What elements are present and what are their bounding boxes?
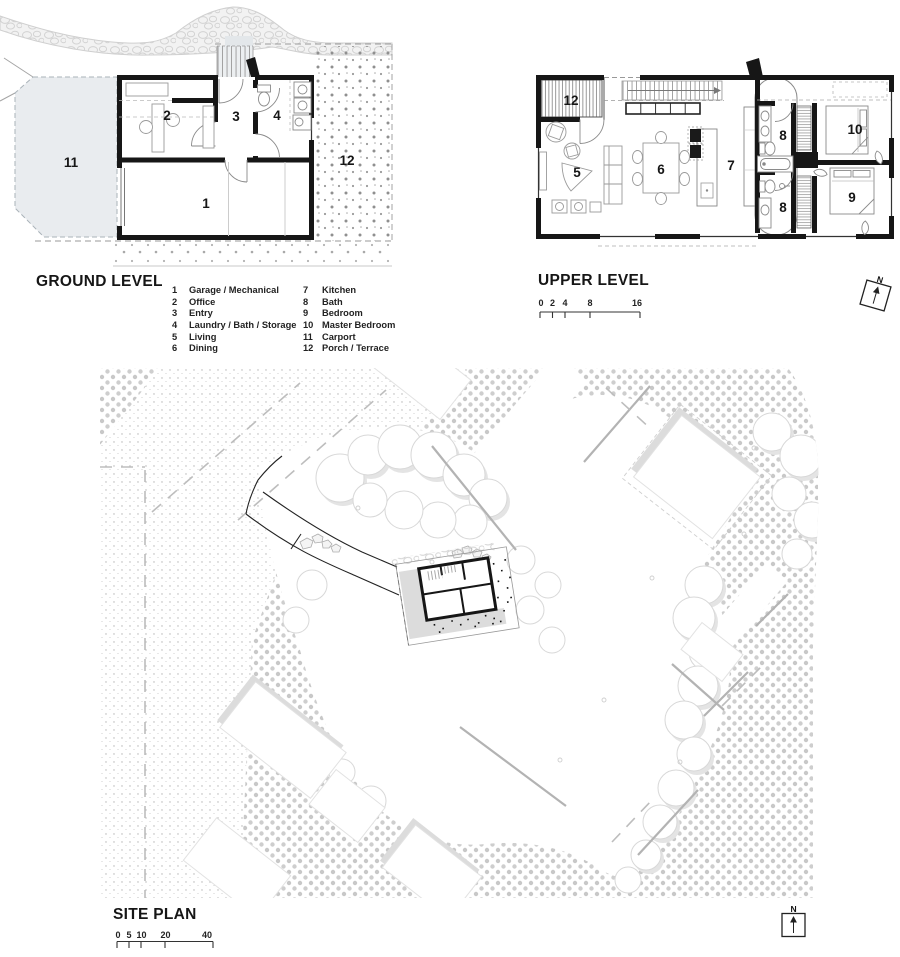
room-label: 9 (848, 190, 856, 205)
room-label: 4 (273, 108, 281, 123)
scale-tick-label: 2 (550, 298, 555, 308)
scale-tick-label: 4 (562, 298, 567, 308)
room-label: 11 (64, 155, 79, 170)
upper-level-plan: 12 5 6 7 8 8 10 9 (536, 58, 894, 246)
legend-item: 3Entry (172, 308, 303, 320)
closet-slider (797, 106, 811, 150)
room-legend: 1Garage / Mechanical 2Office 3Entry 4Lau… (172, 285, 395, 355)
scale-tick-label: 20 (160, 930, 170, 940)
legend-label: Master Bedroom (322, 320, 395, 332)
chimney (746, 58, 763, 77)
ground-level-title: GROUND LEVEL (36, 273, 163, 291)
legend-label: Living (189, 332, 216, 344)
legend-item: 2Office (172, 297, 303, 309)
scale-tick-label: 40 (202, 930, 212, 940)
legend-label: Office (189, 297, 215, 309)
legend-label: Laundry / Bath / Storage (189, 320, 296, 332)
scale-bar-upper: 0 2 4 8 16 (538, 298, 642, 318)
legend-number: 10 (303, 320, 322, 332)
upper-level-title: UPPER LEVEL (538, 272, 649, 290)
legend-label: Bath (322, 297, 343, 309)
kitchen-fixtures (688, 107, 755, 206)
north-arrow-upper: N (860, 271, 893, 311)
room-label: 8 (779, 128, 787, 143)
legend-item: 4Laundry / Bath / Storage (172, 320, 303, 332)
architectural-sheet: 2 3 4 1 11 12 (0, 0, 900, 957)
legend-item: 5Living (172, 332, 303, 344)
laundry-fixtures (258, 82, 312, 130)
room-label: 2 (163, 108, 171, 123)
ground-level-plan: 2 3 4 1 11 12 (0, 7, 392, 266)
garage-door (121, 168, 125, 226)
north-arrow-site: N (782, 904, 805, 937)
legend-number: 11 (303, 332, 322, 344)
ground-walls (117, 75, 314, 240)
legend-label: Entry (189, 308, 213, 320)
scale-bar-site: 0 5 10 20 40 (115, 930, 213, 948)
legend-item: 8Bath (303, 297, 395, 309)
garage-bay-lines (229, 162, 286, 236)
room-label: 10 (847, 122, 862, 137)
legend-number: 12 (303, 343, 322, 355)
site-plan (100, 325, 833, 920)
scale-tick-label: 0 (538, 298, 543, 308)
scale-tick-label: 0 (115, 930, 120, 940)
legend-label: Garage / Mechanical (189, 285, 279, 297)
room-label: 6 (657, 162, 665, 177)
terrace-lower-band (113, 243, 392, 265)
legend-number: 4 (172, 320, 189, 332)
legend-number: 7 (303, 285, 322, 297)
scale-tick-label: 10 (136, 930, 146, 940)
legend-item: 10Master Bedroom (303, 320, 395, 332)
legend-column-1: 1Garage / Mechanical 2Office 3Entry 4Lau… (172, 285, 303, 355)
room-label: 7 (727, 158, 735, 173)
legend-column-2: 7Kitchen 8Bath 9Bedroom 10Master Bedroom… (303, 285, 395, 355)
stair-shelf (626, 103, 700, 114)
legend-number: 3 (172, 308, 189, 320)
scale-tick-label: 8 (587, 298, 592, 308)
legend-label: Carport (322, 332, 356, 344)
room-label: 12 (339, 153, 354, 168)
legend-number: 9 (303, 308, 322, 320)
legend-number: 6 (172, 343, 189, 355)
room-label: 1 (202, 196, 210, 211)
plan-drawing: 2 3 4 1 11 12 (0, 0, 900, 957)
north-label: N (876, 274, 885, 285)
legend-item: 6Dining (172, 343, 303, 355)
legend-item: 12Porch / Terrace (303, 343, 395, 355)
legend-item: 1Garage / Mechanical (172, 285, 303, 297)
legend-label: Porch / Terrace (322, 343, 389, 355)
legend-item: 11Carport (303, 332, 395, 344)
closet-slider (797, 176, 811, 228)
legend-number: 1 (172, 285, 189, 297)
legend-label: Kitchen (322, 285, 356, 297)
site-plan-title: SITE PLAN (113, 906, 197, 924)
room-label: 8 (779, 200, 787, 215)
legend-item: 9Bedroom (303, 308, 395, 320)
legend-number: 5 (172, 332, 189, 344)
scale-tick-label: 16 (632, 298, 642, 308)
north-label: N (790, 904, 796, 914)
legend-number: 8 (303, 297, 322, 309)
scale-tick-label: 5 (126, 930, 131, 940)
terrace-area (313, 46, 392, 241)
legend-number: 2 (172, 297, 189, 309)
room-label: 5 (573, 165, 581, 180)
room-label: 12 (563, 93, 578, 108)
bath-wall-block (791, 152, 818, 168)
legend-item: 7Kitchen (303, 285, 395, 297)
legend-label: Dining (189, 343, 218, 355)
room-label: 3 (232, 109, 240, 124)
upper-stairs (604, 81, 724, 101)
skylight-dash (833, 82, 887, 97)
legend-label: Bedroom (322, 308, 363, 320)
